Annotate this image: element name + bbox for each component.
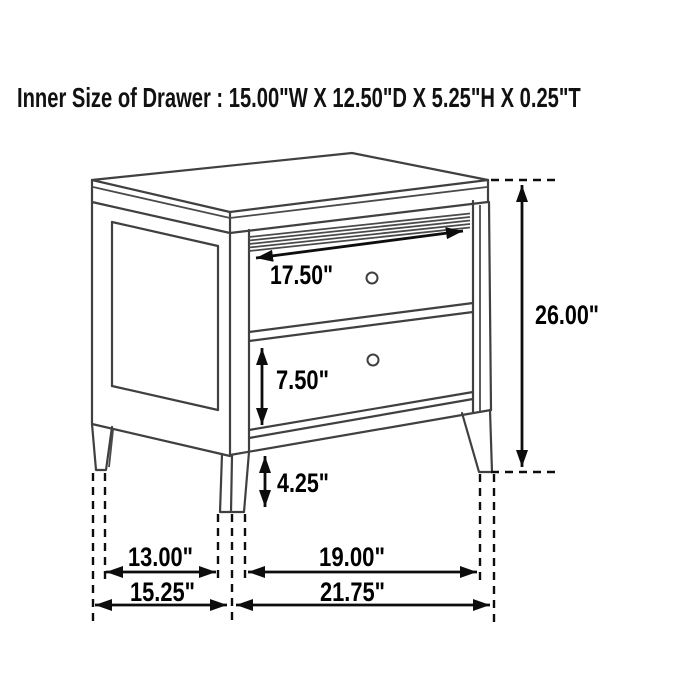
lower-drawer-height-label: 7.50" <box>276 365 329 395</box>
front-right-leg <box>462 410 492 472</box>
front-face <box>230 201 491 455</box>
overall-height-label: 26.00" <box>535 300 599 330</box>
dimension-labels: 17.50" 7.50" 4.25" 26.00" 13.00" 19.00" … <box>128 260 599 607</box>
nightstand-dimension-diagram: 17.50" 7.50" 4.25" 26.00" 13.00" 19.00" … <box>0 0 700 700</box>
drawer-width-label: 17.50" <box>270 260 333 290</box>
floor-clearance-label: 4.25" <box>277 468 329 498</box>
dimension-annotations: 17.50" 7.50" 4.25" 26.00" 13.00" 19.00" … <box>93 180 599 622</box>
side-leg-span-label: 13.00" <box>128 542 193 572</box>
front-leg-span-label: 19.00" <box>319 542 385 572</box>
front-left-leg <box>220 452 249 512</box>
nightstand-drawing <box>92 153 492 512</box>
top-drawer-knob <box>367 273 378 284</box>
diagram-page: Inner Size of Drawer : 15.00"W X 12.50"D… <box>0 0 700 700</box>
side-panel <box>92 202 230 456</box>
overall-width-label: 21.75" <box>320 577 385 607</box>
back-left-leg <box>92 424 113 470</box>
overall-depth-label: 15.25" <box>130 577 195 607</box>
bottom-drawer-knob <box>368 355 379 366</box>
